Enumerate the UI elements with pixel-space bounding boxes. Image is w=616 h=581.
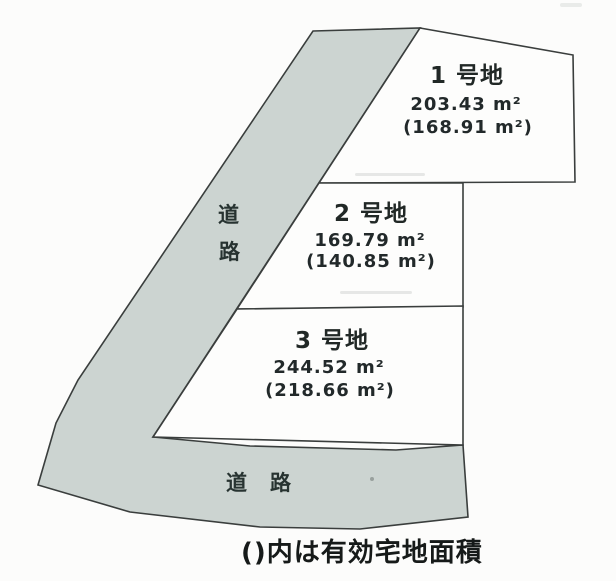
scan-artifact-smudge-top-right (560, 3, 582, 7)
plot-3-name: 3 号地 (295, 328, 369, 354)
plot-2-name: 2 号地 (334, 201, 408, 227)
side-road-label-char-1: 道 (218, 203, 240, 227)
plot-1-area: 203.43 m² (410, 94, 521, 115)
plot-2-effective-area: (140.85 m²) (306, 251, 436, 272)
plot-2-area: 169.79 m² (314, 230, 425, 251)
plot-1-name: 1 号地 (430, 63, 504, 89)
plot-1-effective-area: (168.91 m²) (403, 117, 533, 138)
scan-artifact-dash-plot2 (340, 291, 412, 294)
scan-artifact-dash-plot1 (355, 173, 425, 176)
scan-artifact-dot-bottom-road (370, 477, 374, 481)
diagram-canvas: 1 号地 203.43 m² (168.91 m²) 2 号地 169.79 m… (0, 0, 616, 581)
caption-effective-area-note: ()内は有効宅地面積 (241, 537, 483, 568)
plot-3-effective-area: (218.66 m²) (265, 380, 395, 401)
plot-3-area: 244.52 m² (273, 357, 384, 378)
land-plot-diagram-page: 1 号地 203.43 m² (168.91 m²) 2 号地 169.79 m… (0, 0, 616, 581)
bottom-road-label: 道 路 (226, 471, 292, 495)
side-road-label-char-2: 路 (219, 240, 241, 264)
